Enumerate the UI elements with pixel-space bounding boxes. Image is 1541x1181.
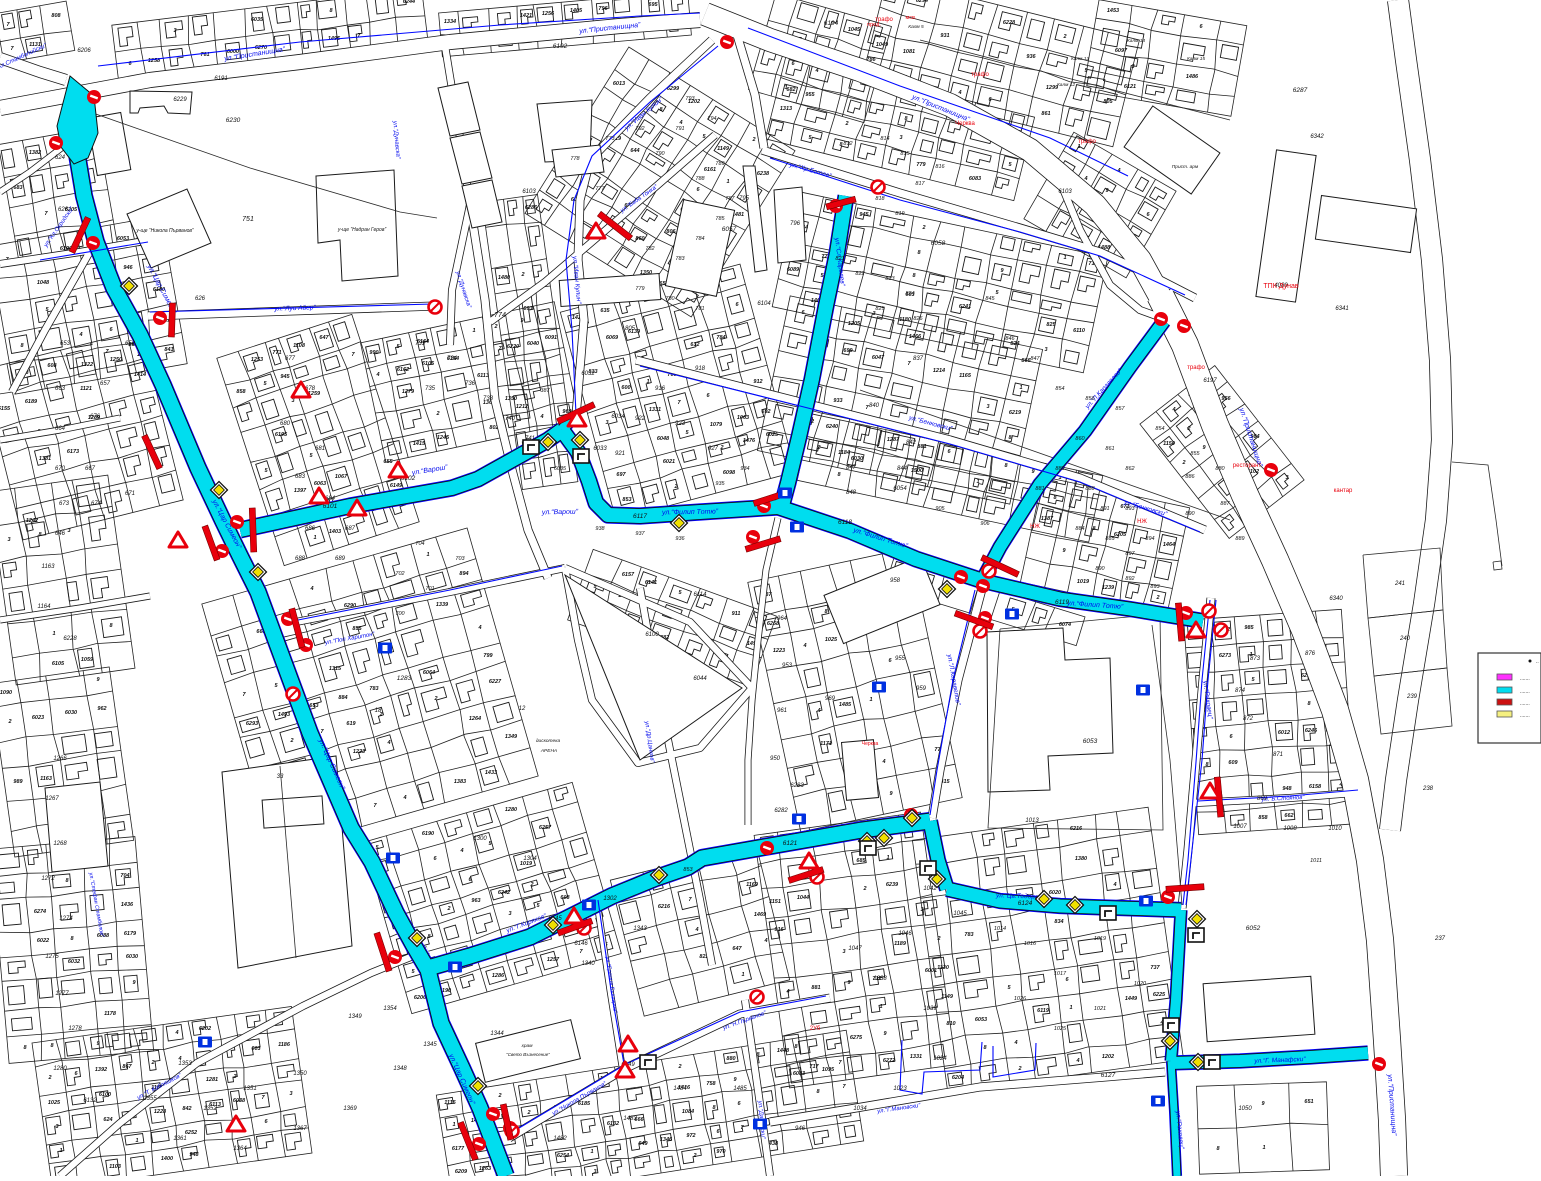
svg-text:699: 699	[843, 348, 853, 354]
svg-text:853: 853	[622, 497, 631, 503]
svg-text:1045: 1045	[953, 911, 967, 917]
svg-text:1048: 1048	[37, 280, 50, 286]
svg-text:2: 2	[844, 121, 848, 127]
svg-text:1165: 1165	[959, 373, 972, 379]
svg-text:702: 702	[395, 571, 404, 577]
svg-text:12: 12	[519, 706, 526, 712]
svg-text:632: 632	[690, 342, 699, 348]
svg-text:890: 890	[1185, 511, 1195, 517]
svg-text:1008: 1008	[1283, 826, 1297, 832]
svg-text:6272: 6272	[883, 1058, 895, 1064]
svg-text:6113: 6113	[477, 373, 489, 379]
svg-text:1067: 1067	[335, 474, 348, 480]
svg-text:1020: 1020	[1134, 981, 1147, 987]
svg-text:697: 697	[616, 472, 626, 478]
svg-text:1286: 1286	[492, 973, 505, 979]
svg-text:6119: 6119	[1055, 599, 1069, 606]
svg-text:692: 692	[761, 409, 770, 415]
svg-text:990: 990	[369, 350, 378, 356]
svg-text:662: 662	[1284, 813, 1293, 819]
svg-text:6189: 6189	[25, 399, 38, 405]
svg-text:1: 1	[590, 1149, 593, 1155]
svg-text:1081: 1081	[903, 49, 915, 55]
svg-text:6058: 6058	[931, 240, 946, 247]
svg-text:816: 816	[935, 164, 945, 170]
svg-text:6032: 6032	[68, 959, 80, 965]
svg-text:955: 955	[895, 656, 906, 662]
svg-text:3: 3	[842, 949, 845, 955]
svg-text:704: 704	[415, 541, 424, 547]
svg-text:1: 1	[313, 535, 316, 541]
svg-text:2: 2	[677, 1064, 681, 1070]
svg-text:1: 1	[1069, 1005, 1072, 1011]
svg-text:1287: 1287	[887, 437, 900, 443]
svg-text:858: 858	[236, 389, 246, 395]
svg-text:1013: 1013	[1025, 818, 1039, 824]
svg-text:1350: 1350	[505, 396, 517, 402]
svg-text:6274: 6274	[34, 909, 46, 915]
svg-text:6035: 6035	[251, 17, 264, 23]
svg-text:1010: 1010	[1328, 826, 1342, 832]
svg-text:1279: 1279	[402, 389, 415, 395]
svg-text:387: 387	[540, 388, 550, 394]
svg-text:прод.: прод.	[867, 22, 881, 28]
svg-text:6342: 6342	[1310, 134, 1324, 140]
svg-text:1480: 1480	[498, 275, 510, 281]
svg-text:2Уб: 2Уб	[810, 1026, 821, 1032]
svg-text:619: 619	[346, 721, 356, 727]
svg-text:958: 958	[890, 578, 901, 584]
svg-text:6293: 6293	[246, 721, 258, 727]
svg-text:6057: 6057	[722, 226, 737, 233]
svg-text:1: 1	[426, 552, 429, 558]
svg-text:783: 783	[675, 256, 685, 262]
svg-text:738: 738	[483, 396, 494, 402]
svg-text:6341: 6341	[1335, 306, 1348, 312]
svg-text:936: 936	[1026, 54, 1036, 60]
svg-text:737: 737	[1150, 965, 1160, 971]
svg-text:Калм 5: Калм 5	[908, 24, 924, 30]
svg-text:922: 922	[635, 416, 646, 422]
svg-text:784: 784	[695, 236, 704, 242]
svg-text:1023: 1023	[893, 1086, 907, 1092]
svg-text:1047: 1047	[848, 946, 862, 952]
svg-text:858: 858	[1258, 815, 1268, 821]
svg-text:1304: 1304	[523, 856, 537, 862]
svg-text:6069: 6069	[606, 335, 619, 341]
svg-text:6238: 6238	[757, 171, 770, 177]
svg-text:2: 2	[719, 445, 723, 451]
svg-text:880: 880	[1215, 466, 1225, 472]
svg-text:881: 881	[917, 444, 926, 450]
svg-text:3: 3	[605, 420, 608, 426]
svg-text:1339: 1339	[436, 602, 449, 608]
svg-text:4: 4	[539, 414, 543, 420]
svg-text:1277: 1277	[55, 991, 69, 997]
svg-text:916: 916	[774, 927, 784, 933]
svg-text:888: 888	[1085, 486, 1095, 492]
svg-text:1483: 1483	[623, 1116, 637, 1122]
svg-text:808: 808	[51, 13, 61, 19]
svg-text:НЖ: НЖ	[1137, 519, 1147, 525]
svg-text:1348: 1348	[393, 1066, 407, 1072]
svg-text:1274: 1274	[59, 916, 73, 922]
svg-text:873: 873	[1250, 656, 1261, 662]
svg-text:2: 2	[289, 738, 293, 744]
svg-text:6047: 6047	[872, 355, 885, 361]
svg-text:1223: 1223	[353, 749, 365, 755]
svg-text:6121: 6121	[1124, 84, 1136, 90]
svg-text:1063: 1063	[737, 415, 749, 421]
svg-text:1343: 1343	[633, 926, 647, 932]
svg-text:894: 894	[1145, 536, 1154, 542]
svg-text:6209: 6209	[455, 1169, 468, 1175]
svg-text:240: 240	[1399, 636, 1411, 642]
svg-text:ресторант: ресторант	[1233, 463, 1262, 469]
svg-text:680: 680	[280, 421, 291, 427]
svg-text:2: 2	[520, 272, 524, 278]
svg-text:1019: 1019	[1094, 936, 1106, 942]
svg-text:храм: храм	[520, 1044, 533, 1049]
svg-text:6219: 6219	[1009, 410, 1022, 416]
svg-text:821: 821	[835, 256, 844, 262]
svg-text:703: 703	[455, 556, 465, 562]
svg-text:825: 825	[875, 306, 885, 312]
svg-text:889: 889	[1235, 536, 1244, 542]
svg-text:815: 815	[900, 151, 910, 157]
svg-text:1353: 1353	[178, 1061, 192, 1067]
svg-text:6100: 6100	[645, 632, 659, 638]
svg-text:1415: 1415	[413, 441, 426, 447]
svg-text:4: 4	[802, 643, 806, 649]
svg-text:6257: 6257	[539, 825, 552, 831]
svg-text:4: 4	[881, 759, 885, 765]
svg-text:3: 3	[593, 1169, 596, 1175]
svg-text:624: 624	[103, 1117, 112, 1123]
svg-text:6282: 6282	[774, 808, 788, 814]
svg-text:4: 4	[477, 625, 481, 631]
svg-text:6225: 6225	[1153, 992, 1166, 998]
svg-text:6195: 6195	[275, 432, 288, 438]
svg-text:882: 882	[1055, 466, 1064, 472]
svg-text:842: 842	[906, 440, 917, 446]
svg-text:3: 3	[986, 404, 989, 410]
svg-text:6035: 6035	[554, 466, 567, 472]
svg-text:2: 2	[7, 719, 11, 725]
svg-text:2: 2	[232, 1074, 236, 1080]
svg-text:671: 671	[125, 491, 135, 497]
svg-text:6254: 6254	[557, 1153, 569, 1159]
svg-text:1115: 1115	[444, 1100, 456, 1106]
svg-text:649: 649	[638, 1141, 648, 1147]
svg-text:783: 783	[964, 932, 973, 938]
svg-text:3: 3	[7, 537, 10, 543]
svg-text:673: 673	[59, 501, 70, 507]
svg-text:трафо: трафо	[1078, 139, 1096, 145]
svg-text:1: 1	[976, 479, 979, 485]
svg-text:6013: 6013	[613, 81, 625, 87]
svg-text:1466: 1466	[909, 334, 922, 340]
svg-text:6191: 6191	[214, 76, 227, 82]
svg-text:893: 893	[1150, 584, 1160, 590]
svg-text:847: 847	[846, 465, 857, 471]
svg-text:4: 4	[78, 332, 82, 338]
svg-text:1184: 1184	[838, 450, 850, 456]
svg-text:1313: 1313	[780, 106, 792, 112]
svg-text:2: 2	[150, 1060, 154, 1066]
svg-text:862: 862	[1125, 466, 1134, 472]
svg-text:1: 1	[741, 972, 744, 978]
svg-text:2: 2	[1181, 460, 1185, 466]
svg-text:18: 18	[375, 708, 382, 714]
svg-text:1340: 1340	[581, 961, 595, 967]
svg-text:921: 921	[615, 451, 625, 457]
svg-text:1364: 1364	[233, 1146, 247, 1152]
svg-text:6161: 6161	[704, 167, 716, 173]
svg-text:6032: 6032	[581, 371, 595, 377]
svg-text:6119: 6119	[1037, 1008, 1050, 1014]
svg-text:946: 946	[795, 1126, 806, 1132]
svg-text:1380: 1380	[1075, 856, 1087, 862]
svg-text:1164: 1164	[38, 604, 52, 610]
svg-text:.......: .......	[1520, 676, 1530, 682]
svg-text:6121: 6121	[783, 840, 798, 847]
svg-text:964: 964	[777, 616, 788, 622]
svg-text:897: 897	[1125, 551, 1135, 557]
svg-text:1: 1	[886, 855, 889, 861]
svg-text:1: 1	[52, 631, 55, 637]
svg-text:1186: 1186	[278, 1042, 291, 1048]
svg-text:857: 857	[1115, 406, 1125, 412]
svg-text:4: 4	[814, 68, 818, 74]
svg-text:871: 871	[1273, 752, 1283, 758]
svg-text:1367: 1367	[293, 1126, 307, 1132]
svg-text:1178: 1178	[104, 1011, 117, 1017]
svg-text:6228: 6228	[1003, 20, 1016, 26]
svg-text:1345: 1345	[423, 1042, 437, 1048]
svg-text:6021: 6021	[663, 459, 675, 465]
svg-text:791: 791	[675, 126, 684, 132]
svg-text:3: 3	[508, 911, 511, 917]
svg-text:935: 935	[715, 481, 725, 487]
svg-text:884: 884	[338, 695, 347, 701]
svg-text:Прист. арм: Прист. арм	[1172, 164, 1199, 170]
svg-text:683: 683	[295, 474, 306, 480]
svg-text:1163: 1163	[40, 776, 52, 782]
svg-text:1189: 1189	[894, 941, 907, 947]
svg-text:1024: 1024	[933, 1056, 947, 1062]
svg-text:1079: 1079	[710, 422, 723, 428]
svg-text:6030: 6030	[851, 456, 863, 462]
svg-text:777: 777	[595, 186, 605, 192]
svg-text:6103: 6103	[522, 189, 536, 195]
svg-text:6053: 6053	[1083, 738, 1098, 745]
svg-text:635: 635	[600, 308, 610, 314]
svg-text:6023: 6023	[32, 715, 44, 721]
svg-text:856: 856	[1085, 396, 1095, 402]
svg-text:3: 3	[899, 135, 902, 141]
svg-text:1414: 1414	[134, 372, 146, 378]
svg-text:847: 847	[1030, 356, 1040, 362]
svg-text:2: 2	[526, 1110, 530, 1116]
svg-text:834: 834	[1054, 919, 1063, 925]
svg-text:855: 855	[1190, 451, 1200, 457]
svg-text:1: 1	[726, 179, 729, 185]
svg-text:4: 4	[694, 927, 698, 933]
svg-text:6230: 6230	[226, 117, 241, 124]
svg-text:2: 2	[816, 445, 820, 451]
svg-text:1397: 1397	[294, 488, 307, 494]
svg-text:652: 652	[125, 341, 136, 347]
svg-text:2: 2	[921, 225, 925, 231]
svg-text:6192: 6192	[553, 43, 568, 50]
svg-text:861: 861	[1105, 446, 1114, 452]
svg-text:1021: 1021	[1094, 1006, 1106, 1012]
svg-text:880: 880	[726, 1056, 735, 1062]
svg-text:6098: 6098	[723, 470, 736, 476]
svg-text:6194: 6194	[824, 20, 839, 27]
svg-text:1205: 1205	[848, 321, 861, 327]
svg-text:948: 948	[189, 1152, 199, 1158]
svg-text:734: 734	[447, 356, 458, 362]
svg-text:682: 682	[786, 87, 795, 93]
svg-text:.......: .......	[1520, 701, 1530, 707]
svg-text:6083: 6083	[793, 1071, 805, 1077]
svg-text:972: 972	[686, 1133, 695, 1139]
svg-text:867: 867	[122, 1064, 132, 1070]
svg-text:1315: 1315	[329, 666, 342, 672]
svg-text:890: 890	[1095, 566, 1105, 572]
svg-text:3: 3	[1044, 347, 1047, 353]
svg-text:853: 853	[683, 867, 693, 873]
svg-text:905: 905	[935, 506, 945, 512]
svg-text:653: 653	[60, 341, 71, 347]
svg-text:685: 685	[856, 858, 866, 864]
svg-text:6287: 6287	[1293, 87, 1308, 94]
svg-text:923: 923	[675, 421, 686, 427]
svg-text:6038: 6038	[233, 1098, 246, 1104]
svg-text:4: 4	[957, 90, 961, 96]
svg-text:4: 4	[309, 586, 313, 592]
svg-text:6127: 6127	[1101, 1072, 1116, 1079]
svg-text:кантар: кантар	[1334, 488, 1353, 494]
svg-text:2: 2	[673, 484, 677, 490]
svg-text:840: 840	[869, 403, 880, 409]
svg-text:751: 751	[242, 216, 254, 223]
svg-text:6025: 6025	[766, 432, 779, 438]
svg-text:6204: 6204	[952, 1075, 964, 1081]
svg-text:793: 793	[685, 96, 695, 102]
svg-text:790: 790	[655, 151, 665, 157]
svg-text:1485: 1485	[733, 1086, 747, 1092]
svg-text:Калм 12: Калм 12	[1057, 82, 1075, 88]
svg-text:704: 704	[120, 873, 129, 879]
svg-text:806: 806	[666, 229, 676, 235]
svg-text:805: 805	[1103, 99, 1113, 105]
svg-text:885: 885	[1105, 536, 1115, 542]
svg-text:6022: 6022	[37, 938, 49, 944]
svg-text:810: 810	[946, 1021, 955, 1027]
svg-text:653: 653	[309, 703, 318, 709]
svg-text:6132: 6132	[607, 1121, 619, 1127]
svg-text:6114: 6114	[694, 592, 708, 598]
svg-text:608: 608	[560, 895, 570, 901]
svg-text:1331: 1331	[649, 407, 661, 413]
svg-text:6173: 6173	[67, 449, 79, 455]
svg-text:6155: 6155	[0, 406, 11, 412]
svg-text:1149: 1149	[717, 146, 730, 152]
svg-text:1476: 1476	[743, 438, 756, 444]
svg-text:948: 948	[1282, 786, 1292, 792]
svg-text:938: 938	[595, 526, 605, 532]
svg-text:881: 881	[811, 985, 820, 991]
svg-text:854: 854	[1055, 386, 1064, 392]
svg-text:676: 676	[90, 414, 101, 420]
svg-text:6053: 6053	[975, 1017, 987, 1023]
svg-text:989: 989	[13, 779, 23, 785]
svg-text:6252: 6252	[185, 1130, 197, 1136]
svg-text:779: 779	[635, 286, 644, 292]
svg-text:6242: 6242	[498, 890, 510, 896]
svg-text:2: 2	[1155, 595, 1159, 601]
svg-text:3: 3	[55, 1124, 58, 1130]
svg-text:1352: 1352	[203, 1106, 217, 1112]
svg-text:688: 688	[295, 556, 306, 562]
svg-text:687: 687	[345, 526, 356, 532]
svg-text:822: 822	[855, 271, 864, 277]
svg-text:792: 792	[635, 126, 644, 132]
svg-text:1381: 1381	[39, 456, 51, 462]
svg-text:1256: 1256	[542, 11, 555, 17]
svg-text:774: 774	[494, 312, 506, 319]
svg-text:2: 2	[692, 1153, 696, 1159]
svg-text:647: 647	[319, 335, 329, 341]
svg-text:818: 818	[875, 196, 885, 202]
svg-text:2: 2	[862, 886, 866, 892]
svg-text:799: 799	[483, 653, 493, 659]
svg-text:6117: 6117	[633, 513, 647, 520]
svg-text:АРЕНА: АРЕНА	[540, 748, 557, 754]
svg-text:681: 681	[315, 446, 325, 452]
svg-text:796: 796	[790, 221, 801, 227]
svg-text:2: 2	[751, 137, 755, 143]
svg-text:4: 4	[1075, 1058, 1079, 1064]
svg-text:..: ..	[1536, 659, 1539, 665]
svg-text:780: 780	[665, 296, 675, 302]
svg-text:1263: 1263	[479, 1166, 491, 1172]
svg-text:2: 2	[1186, 426, 1190, 432]
svg-text:.......: .......	[1520, 713, 1530, 719]
svg-text:4: 4	[375, 372, 379, 378]
svg-text:6105: 6105	[422, 361, 435, 367]
svg-text:6179: 6179	[124, 931, 137, 937]
svg-text:933: 933	[833, 398, 842, 404]
svg-text:1334: 1334	[444, 19, 456, 25]
svg-text:773: 773	[605, 136, 615, 142]
svg-text:651: 651	[1304, 1099, 1313, 1105]
svg-text:6158: 6158	[1309, 784, 1322, 790]
svg-text:608: 608	[47, 363, 57, 369]
svg-text:841: 841	[164, 347, 173, 353]
svg-text:1: 1	[1262, 1145, 1265, 1151]
svg-text:2: 2	[47, 1075, 51, 1081]
svg-text:6141: 6141	[645, 580, 657, 586]
svg-text:891: 891	[1100, 506, 1109, 512]
svg-text:239: 239	[1406, 694, 1418, 700]
svg-text:845: 845	[985, 296, 995, 302]
svg-text:1400: 1400	[161, 1156, 173, 1162]
svg-text:970: 970	[716, 1149, 725, 1155]
